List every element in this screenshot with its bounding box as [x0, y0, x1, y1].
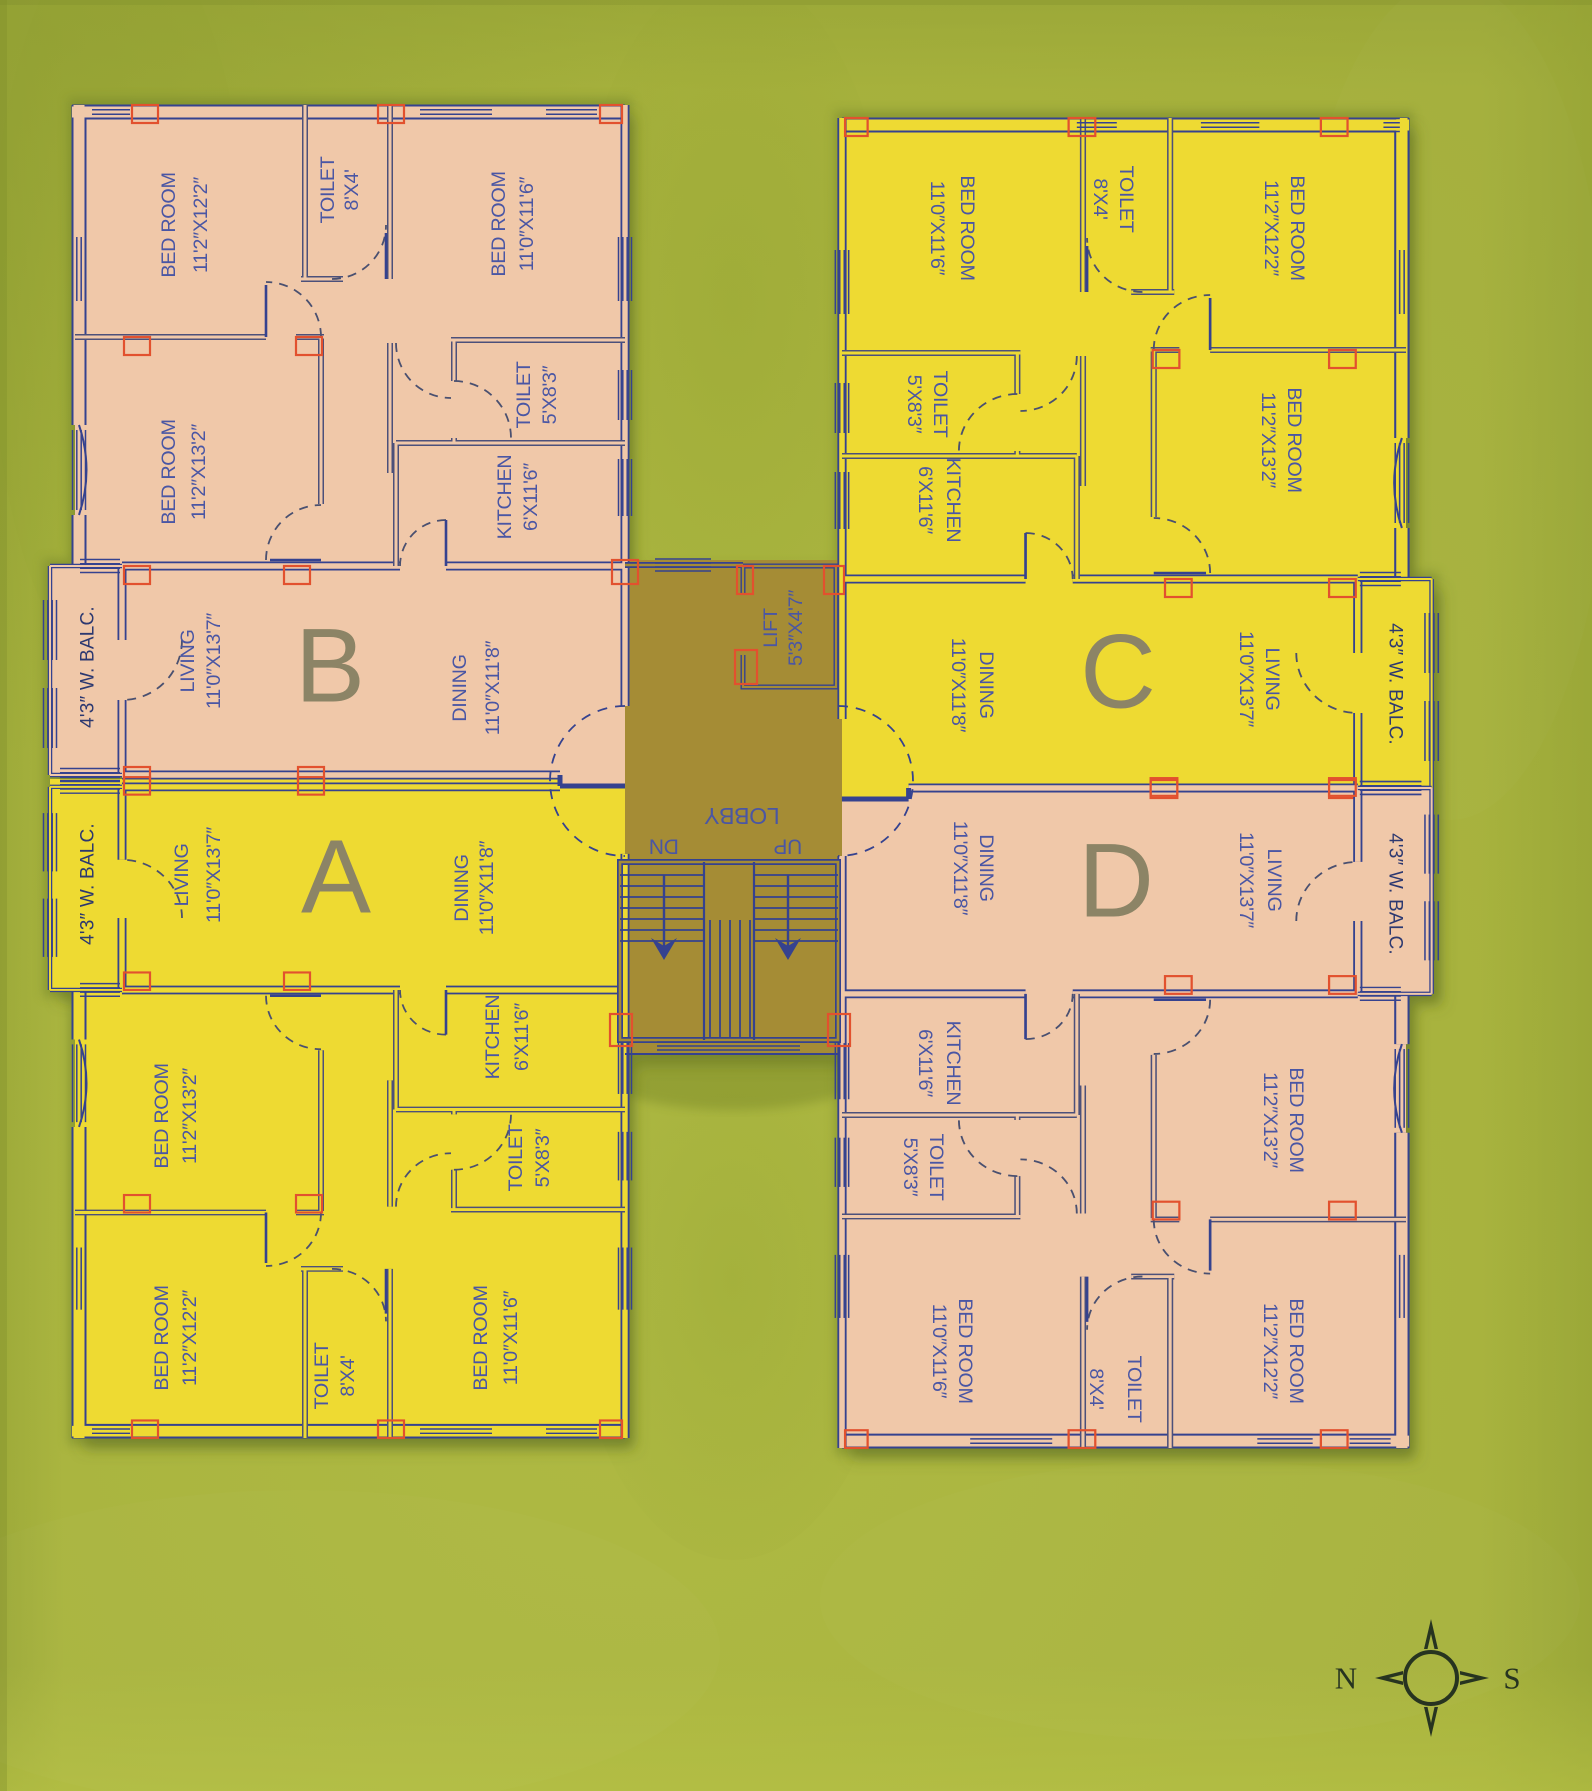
svg-text:8'X4': 8'X4' [1085, 1368, 1107, 1409]
svg-text:TOILET: TOILET [317, 156, 339, 223]
svg-text:8'X4': 8'X4' [341, 169, 363, 210]
svg-text:BED ROOM: BED ROOM [956, 175, 978, 280]
svg-text:BED ROOM: BED ROOM [954, 1298, 976, 1403]
svg-text:S: S [1503, 1661, 1520, 1696]
svg-text:11'0″X11'6″: 11'0″X11'6″ [928, 1304, 950, 1399]
svg-text:C: C [1080, 614, 1156, 731]
svg-text:D: D [1078, 823, 1154, 940]
svg-text:8'X4': 8'X4' [337, 1355, 359, 1396]
svg-text:TOILET: TOILET [311, 1342, 333, 1409]
svg-text:11'0″X11'8″: 11'0″X11'8″ [947, 638, 969, 733]
svg-text:11'0″X13'7″: 11'0″X13'7″ [1235, 832, 1257, 928]
svg-text:LIVING: LIVING [171, 843, 193, 906]
svg-text:LIFT: LIFT [760, 608, 782, 648]
svg-text:TOILET: TOILET [929, 370, 951, 437]
svg-text:BED ROOM: BED ROOM [158, 419, 180, 524]
svg-text:6'X11'6″: 6'X11'6″ [511, 1003, 533, 1071]
svg-text:BED ROOM: BED ROOM [1283, 387, 1305, 492]
svg-text:5'X8'3″: 5'X8'3″ [539, 365, 561, 424]
svg-text:BED ROOM: BED ROOM [1286, 175, 1308, 280]
svg-text:DINING: DINING [975, 651, 997, 718]
svg-text:11'2″X13'2″: 11'2″X13'2″ [1259, 1072, 1281, 1168]
svg-text:11'2″X12'2″: 11'2″X12'2″ [190, 177, 212, 273]
svg-text:B: B [295, 608, 365, 725]
svg-text:BED ROOM: BED ROOM [151, 1285, 173, 1390]
svg-text:TOILET: TOILET [505, 1124, 527, 1191]
svg-text:11'2″X13'2″: 11'2″X13'2″ [188, 424, 210, 520]
svg-text:TOILET: TOILET [1115, 165, 1137, 232]
svg-text:5'3″X4'7″: 5'3″X4'7″ [785, 590, 807, 666]
svg-text:BED ROOM: BED ROOM [151, 1063, 173, 1168]
svg-text:5'X8'3″: 5'X8'3″ [532, 1128, 554, 1187]
svg-text:LIVING: LIVING [177, 629, 199, 692]
svg-text:DINING: DINING [975, 834, 997, 901]
svg-text:TOILET: TOILET [925, 1133, 947, 1200]
svg-text:TOILET: TOILET [1123, 1355, 1145, 1422]
svg-text:11'0″X11'8″: 11'0″X11'8″ [949, 821, 971, 916]
svg-text:DINING: DINING [451, 854, 473, 921]
svg-text:UP: UP [774, 835, 803, 858]
svg-text:LIVING: LIVING [1261, 647, 1283, 710]
svg-text:6'X11'6″: 6'X11'6″ [520, 463, 542, 531]
svg-text:11'2″X13'2″: 11'2″X13'2″ [179, 1068, 201, 1164]
svg-text:BED ROOM: BED ROOM [1285, 1067, 1307, 1172]
svg-text:LIVING: LIVING [1263, 848, 1285, 911]
svg-text:4'3″ W. BALC.: 4'3″ W. BALC. [78, 606, 99, 728]
svg-text:KITCHEN: KITCHEN [942, 458, 964, 543]
svg-text:11'0″X11'6″: 11'0″X11'6″ [516, 176, 538, 271]
svg-text:4'3″ W. BALC.: 4'3″ W. BALC. [1385, 833, 1406, 955]
svg-text:KITCHEN: KITCHEN [482, 995, 504, 1080]
svg-text:4'3″ W. BALC.: 4'3″ W. BALC. [1385, 623, 1406, 745]
svg-text:BED ROOM: BED ROOM [1285, 1298, 1307, 1403]
svg-text:11'0″X11'8″: 11'0″X11'8″ [482, 640, 504, 735]
svg-text:DINING: DINING [449, 654, 471, 721]
svg-text:BED ROOM: BED ROOM [158, 172, 180, 277]
svg-text:BED ROOM: BED ROOM [470, 1285, 492, 1390]
svg-text:8'X4': 8'X4' [1089, 178, 1111, 219]
svg-text:11'0″X11'6″: 11'0″X11'6″ [500, 1290, 522, 1385]
svg-text:11'2″X12'2″: 11'2″X12'2″ [1260, 180, 1282, 276]
svg-text:5'X8'3″: 5'X8'3″ [899, 1138, 921, 1197]
svg-text:4'3″ W. BALC.: 4'3″ W. BALC. [78, 823, 99, 945]
svg-text:BED ROOM: BED ROOM [488, 171, 510, 276]
svg-text:5'X8'3″: 5'X8'3″ [903, 375, 925, 434]
svg-text:11'0″X13'7″: 11'0″X13'7″ [203, 827, 225, 923]
svg-text:11'0″X13'7″: 11'0″X13'7″ [1235, 631, 1257, 727]
svg-text:DN: DN [649, 835, 679, 858]
svg-text:11'2″X12'2″: 11'2″X12'2″ [179, 1290, 201, 1386]
svg-text:11'2″X13'2″: 11'2″X13'2″ [1257, 392, 1279, 488]
svg-text:11'0″X11'6″: 11'0″X11'6″ [926, 181, 948, 276]
svg-text:TOILET: TOILET [513, 361, 535, 428]
svg-text:KITCHEN: KITCHEN [494, 455, 516, 540]
svg-text:N: N [1335, 1661, 1357, 1696]
svg-text:6'X11'6″: 6'X11'6″ [914, 466, 936, 534]
svg-text:LOBBY: LOBBY [704, 803, 779, 829]
svg-text:A: A [301, 819, 371, 936]
svg-text:11'2″X12'2″: 11'2″X12'2″ [1259, 1303, 1281, 1399]
svg-text:KITCHEN: KITCHEN [942, 1021, 964, 1106]
svg-text:11'0″X11'8″: 11'0″X11'8″ [476, 840, 498, 935]
svg-text:6'X11'6″: 6'X11'6″ [914, 1029, 936, 1097]
svg-text:11'0″X13'7″: 11'0″X13'7″ [203, 613, 225, 709]
